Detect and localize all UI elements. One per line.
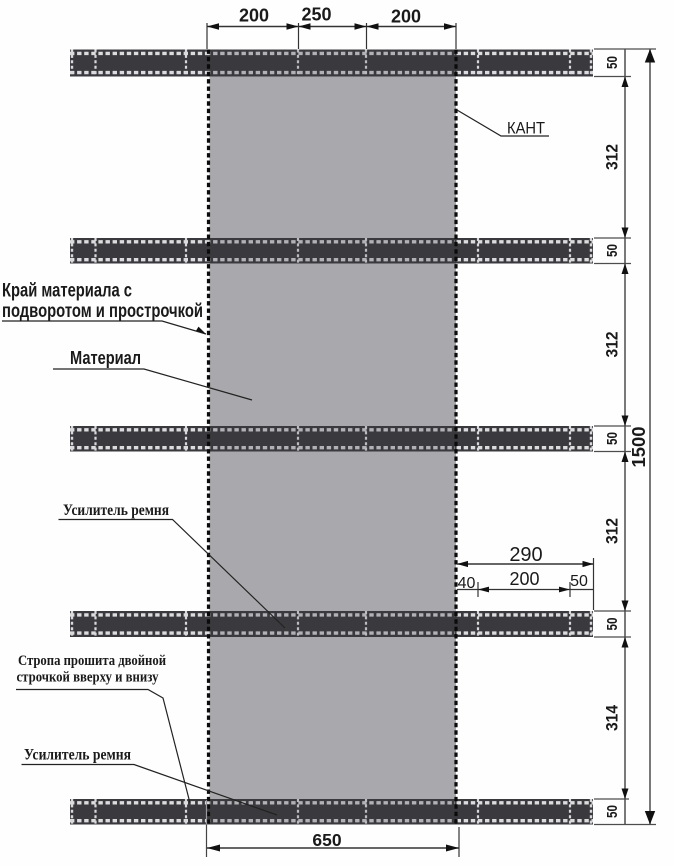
svg-text:312: 312 [603, 518, 621, 544]
svg-text:подворотом и прострочкой: подворотом и прострочкой [2, 301, 203, 322]
svg-text:Материал: Материал [70, 348, 141, 368]
svg-text:290: 290 [509, 544, 542, 566]
svg-text:строчкой вверху и внизу: строчкой вверху и внизу [17, 670, 159, 686]
svg-text:314: 314 [603, 704, 621, 731]
svg-text:650: 650 [312, 830, 341, 850]
svg-text:200: 200 [391, 7, 421, 27]
svg-text:50: 50 [570, 573, 588, 590]
svg-text:40: 40 [458, 575, 476, 592]
svg-text:312: 312 [603, 144, 621, 170]
svg-text:Край материала с: Край материала с [2, 281, 132, 302]
svg-text:50: 50 [604, 432, 621, 445]
svg-text:Стропа прошита двойной: Стропа прошита двойной [18, 653, 166, 669]
svg-text:1500: 1500 [629, 427, 649, 468]
svg-text:200: 200 [239, 6, 269, 26]
svg-text:250: 250 [301, 5, 331, 25]
svg-text:200: 200 [509, 569, 539, 589]
svg-text:Усилитель ремня: Усилитель ремня [24, 747, 131, 764]
svg-text:КАНТ: КАНТ [507, 119, 545, 138]
svg-text:312: 312 [603, 332, 621, 358]
svg-text:50: 50 [604, 56, 621, 69]
svg-text:50: 50 [604, 244, 621, 257]
svg-text:50: 50 [604, 805, 621, 818]
svg-text:Усилитель ремня: Усилитель ремня [63, 502, 169, 519]
svg-text:50: 50 [604, 618, 621, 631]
